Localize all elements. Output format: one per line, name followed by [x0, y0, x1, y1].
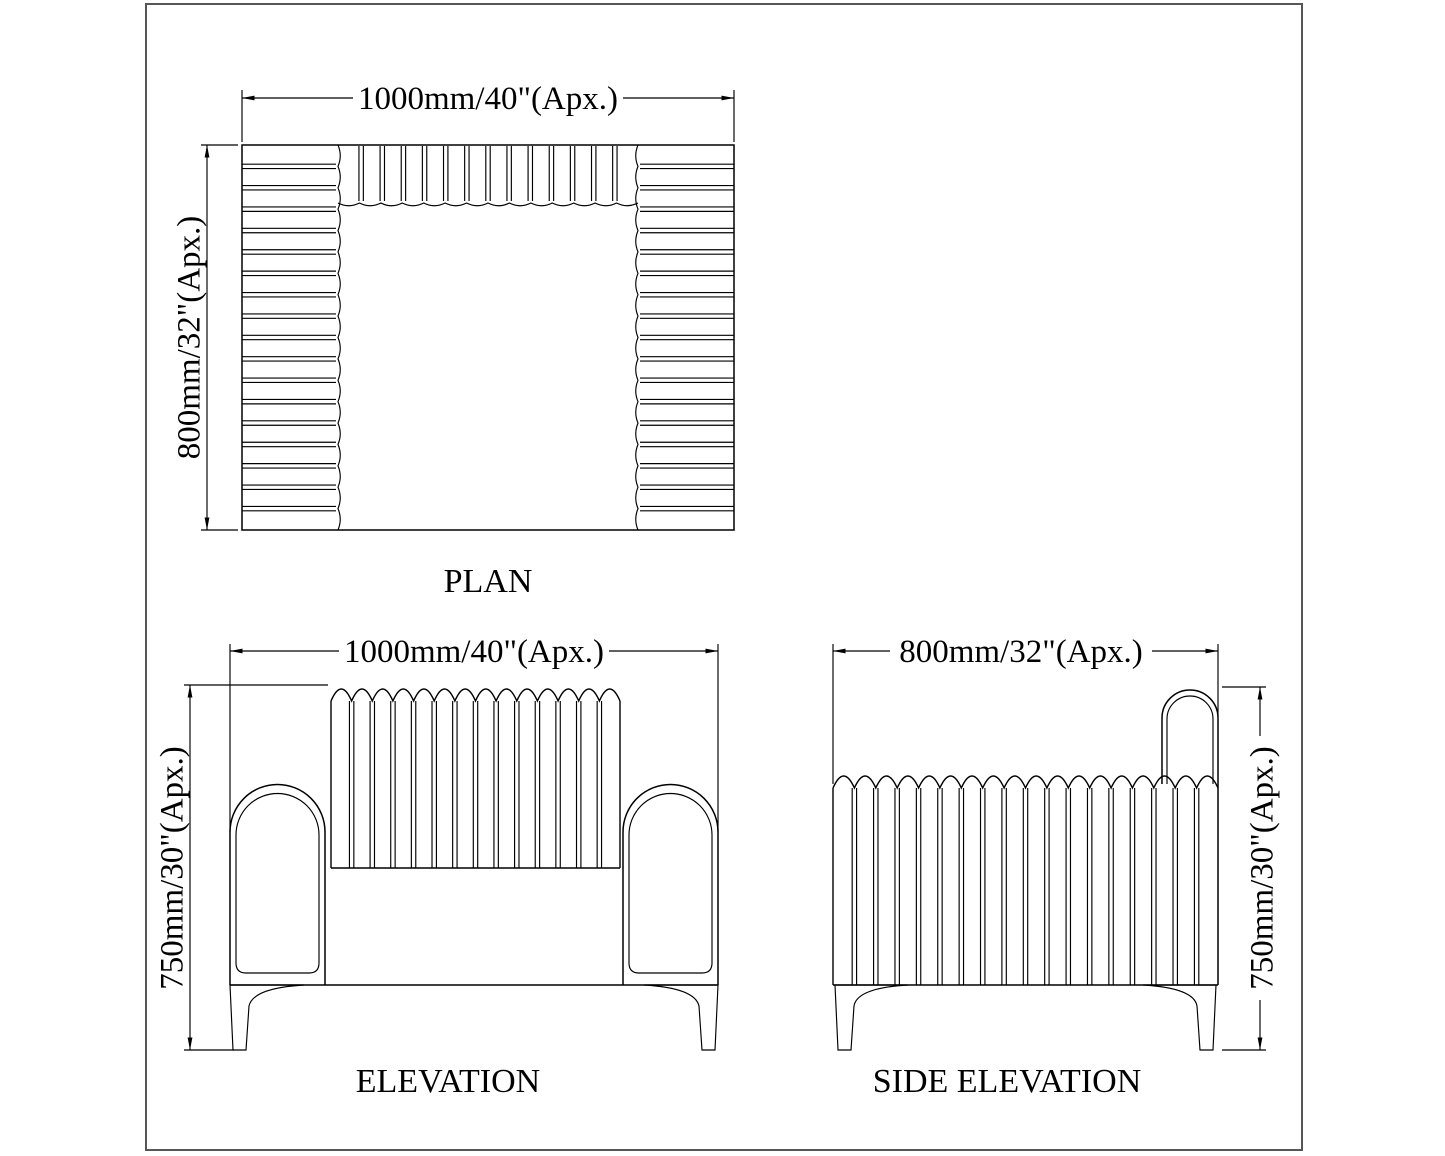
arch-inner-outline	[1167, 696, 1213, 784]
plan-depth-dimension: 800mm/32"(Apx.)	[171, 145, 238, 530]
side-width-label: 800mm/32"(Apx.)	[899, 634, 1143, 670]
plan-left-arm-ribs	[242, 145, 340, 530]
elevation-width-label: 1000mm/40"(Apx.)	[344, 634, 604, 670]
elevation-view: 1000mm/40"(Apx.) 750mm/30"(Apx.) ELEVATI…	[154, 634, 718, 1100]
technical-drawing-canvas: 1000mm/40"(Apx.) 800mm/32"(Apx.) PLAN	[0, 0, 1445, 1156]
drawing-sheet: 1000mm/40"(Apx.) 800mm/32"(Apx.) PLAN	[0, 0, 1445, 1156]
front-leg	[835, 985, 908, 1050]
side-elevation-view: 800mm/32"(Apx.) 750mm/30"(Apx.) SIDE ELE…	[833, 634, 1281, 1100]
arm-outer-outline	[230, 785, 325, 985]
plan-backrest-ribs	[338, 146, 638, 206]
side-panel-channels	[833, 776, 1218, 985]
arch-outer-outline	[1162, 690, 1218, 985]
right-leg	[644, 985, 718, 1050]
elevation-right-arm	[623, 785, 718, 985]
left-leg	[230, 985, 304, 1050]
side-width-dimension: 800mm/32"(Apx.)	[833, 634, 1218, 784]
elevation-caption: ELEVATION	[356, 1063, 540, 1100]
elevation-height-label: 750mm/30"(Apx.)	[155, 746, 191, 990]
side-height-dimension: 750mm/30"(Apx.)	[1222, 687, 1281, 1050]
side-backrest-arch	[1162, 690, 1218, 985]
side-elevation-caption: SIDE ELEVATION	[873, 1063, 1142, 1100]
elevation-backrest-channels	[331, 689, 620, 868]
elevation-height-dimension: 750mm/30"(Apx.)	[154, 685, 328, 1050]
arm-inner-panel	[236, 794, 319, 974]
arm-inner-panel	[629, 794, 712, 974]
arm-outer-outline	[623, 785, 718, 985]
plan-depth-label: 800mm/32"(Apx.)	[172, 216, 208, 460]
plan-view: 1000mm/40"(Apx.) 800mm/32"(Apx.) PLAN	[171, 81, 734, 600]
plan-right-arm-ribs	[636, 145, 734, 530]
back-leg	[1143, 985, 1216, 1050]
plan-caption: PLAN	[444, 563, 533, 600]
side-legs	[835, 985, 1216, 1050]
elevation-legs	[230, 985, 718, 1050]
side-height-label: 750mm/30"(Apx.)	[1245, 746, 1281, 990]
plan-width-label: 1000mm/40"(Apx.)	[358, 81, 618, 117]
sheet-border	[146, 4, 1302, 1150]
elevation-left-arm	[230, 785, 325, 985]
plan-width-dimension: 1000mm/40"(Apx.)	[242, 81, 734, 142]
